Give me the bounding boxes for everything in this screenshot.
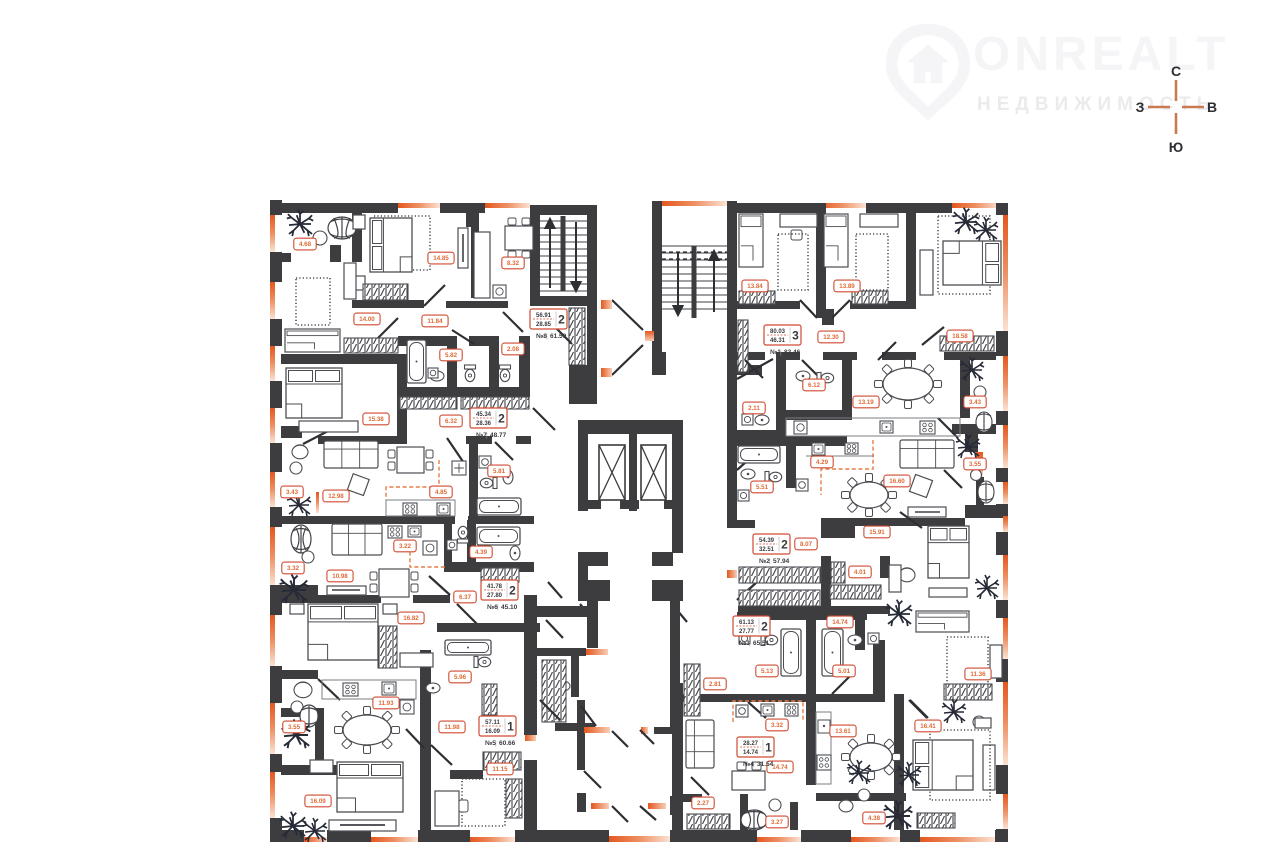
svg-text:4.39: 4.39 <box>475 549 488 556</box>
svg-text:61.59: 61.59 <box>550 333 567 340</box>
svg-text:65.51: 65.51 <box>753 640 770 647</box>
svg-text:2.08: 2.08 <box>507 346 520 353</box>
svg-text:28.36: 28.36 <box>476 421 492 427</box>
svg-text:В: В <box>1207 99 1217 115</box>
svg-text:54.39: 54.39 <box>759 538 775 544</box>
svg-text:З: З <box>1136 99 1145 115</box>
svg-text:27.77: 27.77 <box>739 629 755 635</box>
svg-text:2: 2 <box>498 412 505 426</box>
svg-text:16.60: 16.60 <box>889 478 905 485</box>
svg-text:|: | <box>497 604 499 611</box>
svg-text:5.13: 5.13 <box>761 668 774 675</box>
svg-text:13.61: 13.61 <box>835 728 851 735</box>
svg-text:1: 1 <box>765 741 772 755</box>
svg-text:3.22: 3.22 <box>399 543 412 550</box>
svg-text:12.30: 12.30 <box>823 334 839 341</box>
svg-text:4.01: 4.01 <box>854 569 867 576</box>
svg-text:2: 2 <box>781 538 788 552</box>
svg-text:5.51: 5.51 <box>756 484 769 491</box>
svg-text:18.58: 18.58 <box>952 333 968 340</box>
svg-text:|: | <box>769 558 771 565</box>
svg-text:3.43: 3.43 <box>286 489 299 496</box>
svg-text:4.29: 4.29 <box>816 459 829 466</box>
svg-text:60.66: 60.66 <box>499 740 516 747</box>
svg-text:12.98: 12.98 <box>328 493 344 500</box>
svg-text:С: С <box>1171 63 1181 79</box>
svg-text:14.00: 14.00 <box>359 316 375 323</box>
svg-text:3.32: 3.32 <box>287 565 300 572</box>
svg-text:2.11: 2.11 <box>748 405 760 412</box>
svg-text:|: | <box>753 761 755 768</box>
svg-text:11.98: 11.98 <box>444 724 460 731</box>
svg-text:2: 2 <box>761 620 768 634</box>
svg-text:16.09: 16.09 <box>485 729 501 735</box>
svg-text:|: | <box>495 740 497 747</box>
svg-text:14.85: 14.85 <box>433 255 449 262</box>
svg-text:11.36: 11.36 <box>970 671 986 678</box>
svg-text:4.68: 4.68 <box>299 241 312 248</box>
svg-text:32.51: 32.51 <box>759 547 775 553</box>
svg-text:16.82: 16.82 <box>403 615 419 622</box>
svg-text:6.12: 6.12 <box>808 382 821 389</box>
svg-text:8.32: 8.32 <box>507 260 520 267</box>
svg-text:61.13: 61.13 <box>739 620 755 626</box>
svg-text:3.27: 3.27 <box>771 819 784 826</box>
svg-text:2.27: 2.27 <box>697 800 710 807</box>
svg-text:46.31: 46.31 <box>770 338 786 344</box>
svg-text:11.93: 11.93 <box>378 700 394 707</box>
svg-text:3.32: 3.32 <box>771 722 784 729</box>
svg-text:|: | <box>546 333 548 340</box>
svg-text:80.03: 80.03 <box>770 329 786 335</box>
svg-text:5.81: 5.81 <box>493 468 506 475</box>
svg-text:6.32: 6.32 <box>445 418 458 425</box>
svg-text:3.55: 3.55 <box>288 724 301 731</box>
svg-text:11.15: 11.15 <box>492 766 508 773</box>
svg-text:4.38: 4.38 <box>868 815 881 822</box>
svg-text:57.11: 57.11 <box>485 720 500 726</box>
svg-text:8.07: 8.07 <box>800 541 813 548</box>
svg-text:14.74: 14.74 <box>832 619 848 626</box>
svg-text:5.96: 5.96 <box>454 674 467 681</box>
svg-text:2: 2 <box>558 313 565 327</box>
svg-text:5.01: 5.01 <box>838 668 851 675</box>
svg-text:11.84: 11.84 <box>427 318 443 325</box>
svg-text:2.81: 2.81 <box>709 681 722 688</box>
svg-text:1: 1 <box>507 720 514 734</box>
svg-text:4.85: 4.85 <box>435 489 448 496</box>
svg-text:3.43: 3.43 <box>969 399 982 406</box>
svg-text:|: | <box>780 349 782 356</box>
svg-text:НЕДВИЖИМОСТЬ: НЕДВИЖИМОСТЬ <box>977 94 1216 115</box>
svg-text:ONREALT: ONREALT <box>973 28 1229 81</box>
svg-text:10.98: 10.98 <box>332 573 348 580</box>
svg-text:16.41: 16.41 <box>920 723 936 730</box>
svg-text:|: | <box>486 432 488 439</box>
svg-text:3.55: 3.55 <box>969 461 982 468</box>
svg-text:2: 2 <box>509 584 516 598</box>
svg-text:56.91: 56.91 <box>536 313 552 319</box>
svg-text:13.84: 13.84 <box>747 283 763 290</box>
svg-text:28.85: 28.85 <box>536 322 552 328</box>
svg-text:31.54: 31.54 <box>757 761 774 768</box>
svg-text:48.77: 48.77 <box>490 432 507 439</box>
svg-text:16.09: 16.09 <box>310 798 326 805</box>
svg-text:41.78: 41.78 <box>487 584 503 590</box>
svg-text:14.74: 14.74 <box>743 750 759 756</box>
svg-text:Ю: Ю <box>1169 139 1183 155</box>
svg-text:15.38: 15.38 <box>368 416 384 423</box>
svg-text:6.37: 6.37 <box>459 594 472 601</box>
svg-text:15.91: 15.91 <box>869 529 885 536</box>
svg-text:45.10: 45.10 <box>501 604 518 611</box>
svg-text:27.80: 27.80 <box>487 593 503 599</box>
svg-text:28.27: 28.27 <box>743 741 759 747</box>
svg-text:|: | <box>749 640 751 647</box>
svg-text:3: 3 <box>792 329 799 343</box>
svg-text:83.46: 83.46 <box>784 349 801 356</box>
svg-text:13.89: 13.89 <box>839 283 855 290</box>
svg-text:14.74: 14.74 <box>772 764 788 771</box>
svg-text:45.34: 45.34 <box>476 412 492 418</box>
svg-text:57.94: 57.94 <box>773 558 790 565</box>
svg-text:13.19: 13.19 <box>858 399 874 406</box>
svg-text:5.82: 5.82 <box>445 352 458 359</box>
